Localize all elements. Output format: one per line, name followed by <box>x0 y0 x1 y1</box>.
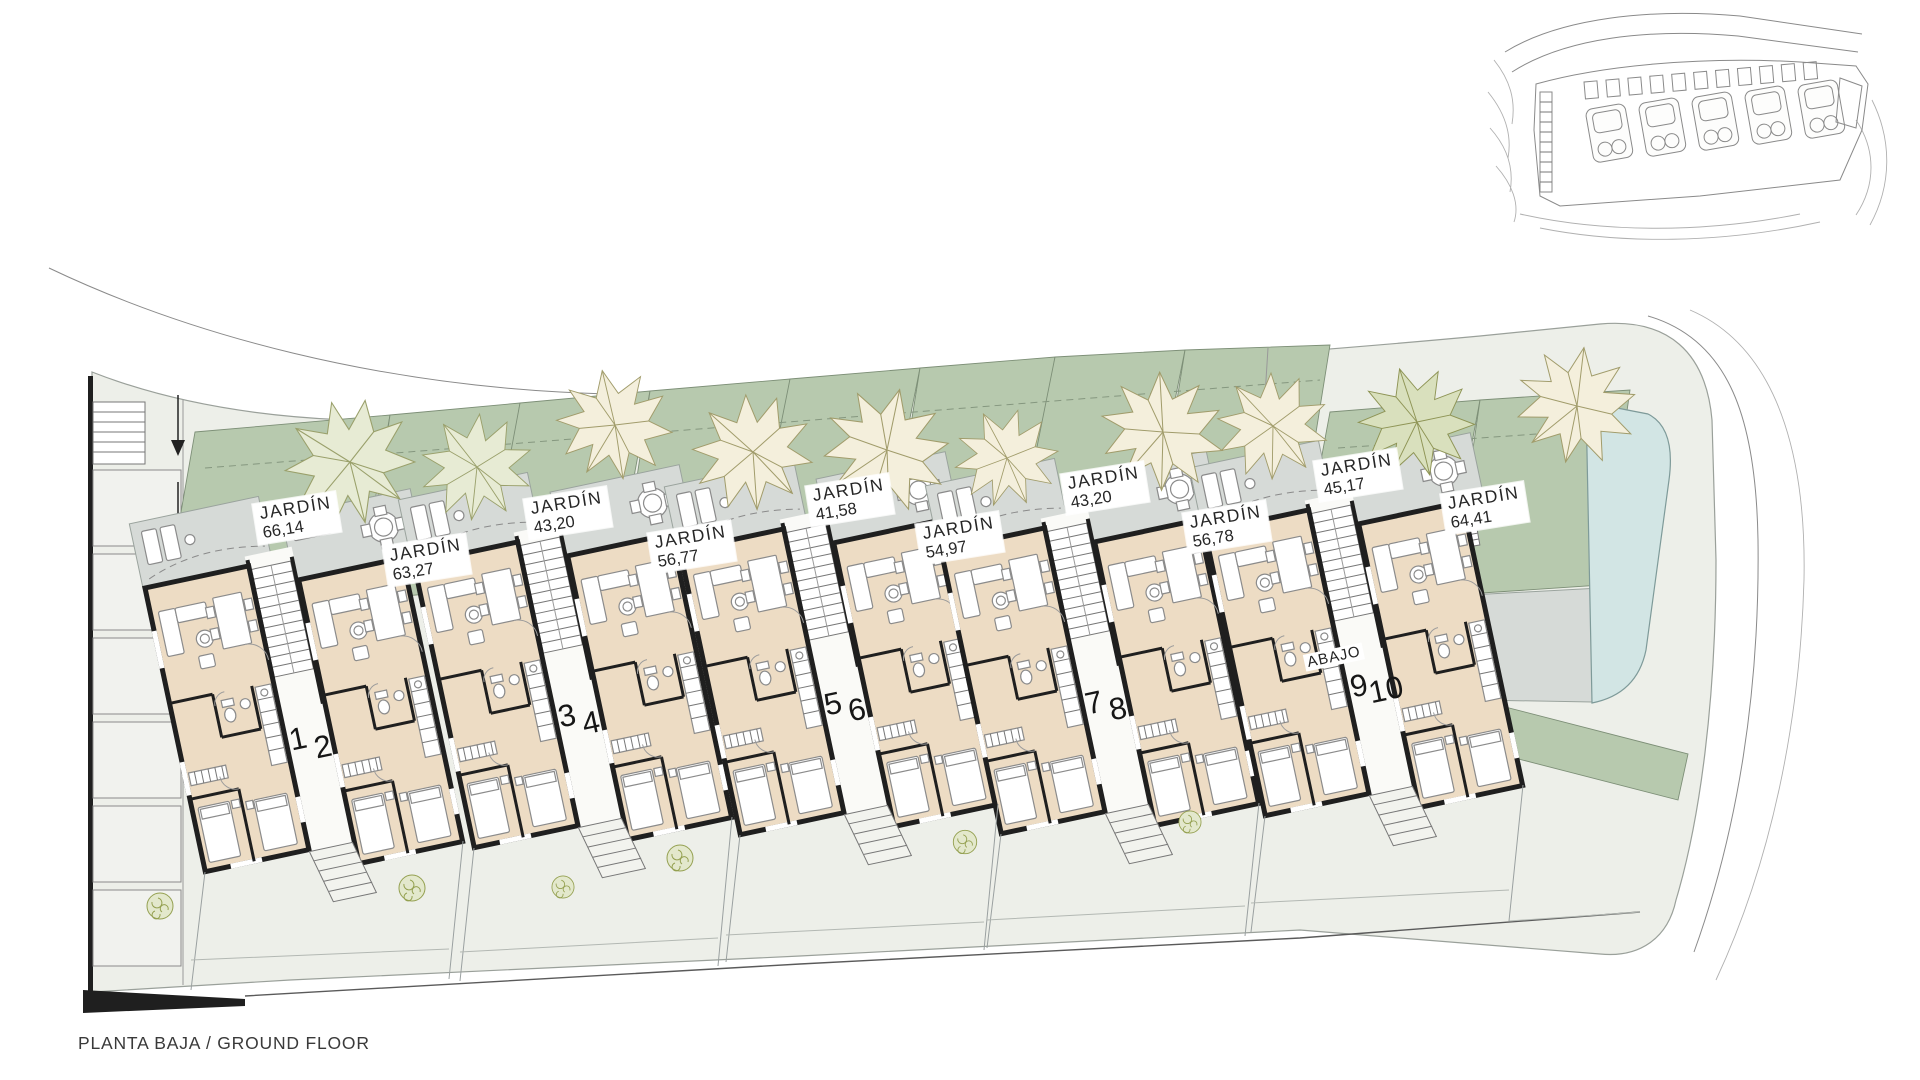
bush-icon <box>399 875 425 901</box>
bush-icon <box>953 830 976 853</box>
unit-number: 10 <box>1365 669 1406 711</box>
bush-icon <box>667 845 693 871</box>
road-edge-line <box>49 268 780 395</box>
bush-icon <box>147 893 173 919</box>
plan-title: PLANTA BAJA / GROUND FLOOR <box>78 1033 370 1054</box>
bush-icon <box>1179 811 1201 833</box>
boundary-wedge <box>83 990 245 1013</box>
floor-plan-page: JARDÍN66,14 JARDÍN63,27 JARDÍN43,20 JARD… <box>0 0 1920 1080</box>
bush-icon <box>552 876 574 898</box>
site-location-inset-map <box>1488 13 1887 239</box>
